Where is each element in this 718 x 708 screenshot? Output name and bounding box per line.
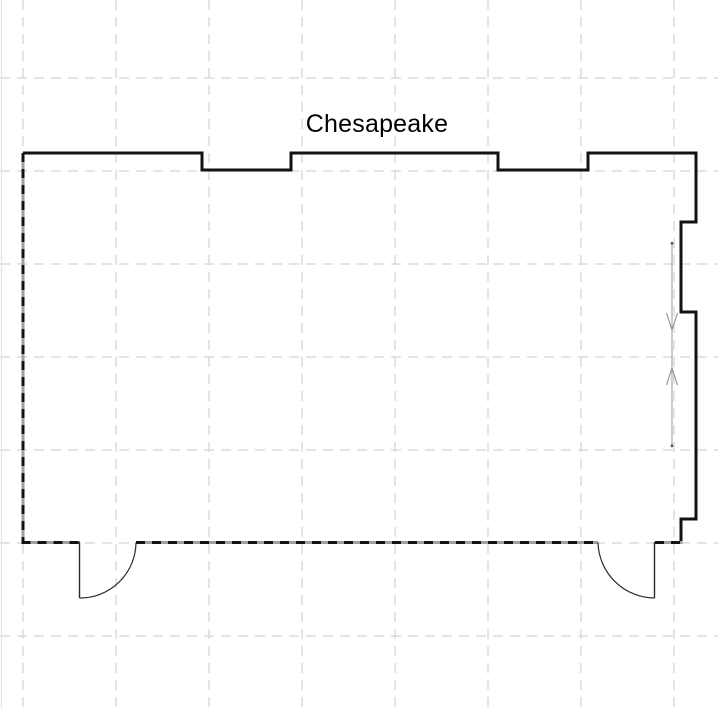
dashed-wall[interactable]: [22, 153, 683, 544]
indicator-end-tick-top: [671, 242, 673, 245]
door-right[interactable]: [598, 542, 655, 598]
swing-direction-indicator: [667, 242, 678, 447]
room-label[interactable]: Chesapeake: [306, 110, 448, 138]
door-right-swing-arc: [598, 543, 655, 599]
floorplan-drawing: [0, 0, 718, 708]
door-left-swing-arc: [80, 543, 137, 599]
indicator-end-tick-bottom: [671, 445, 673, 448]
wall-outline[interactable]: [23, 153, 696, 543]
door-left[interactable]: [80, 542, 137, 598]
grid: [0, 0, 718, 708]
dashed-wall-base: [22, 153, 683, 544]
floorplan-canvas[interactable]: Chesapeake: [0, 0, 718, 708]
